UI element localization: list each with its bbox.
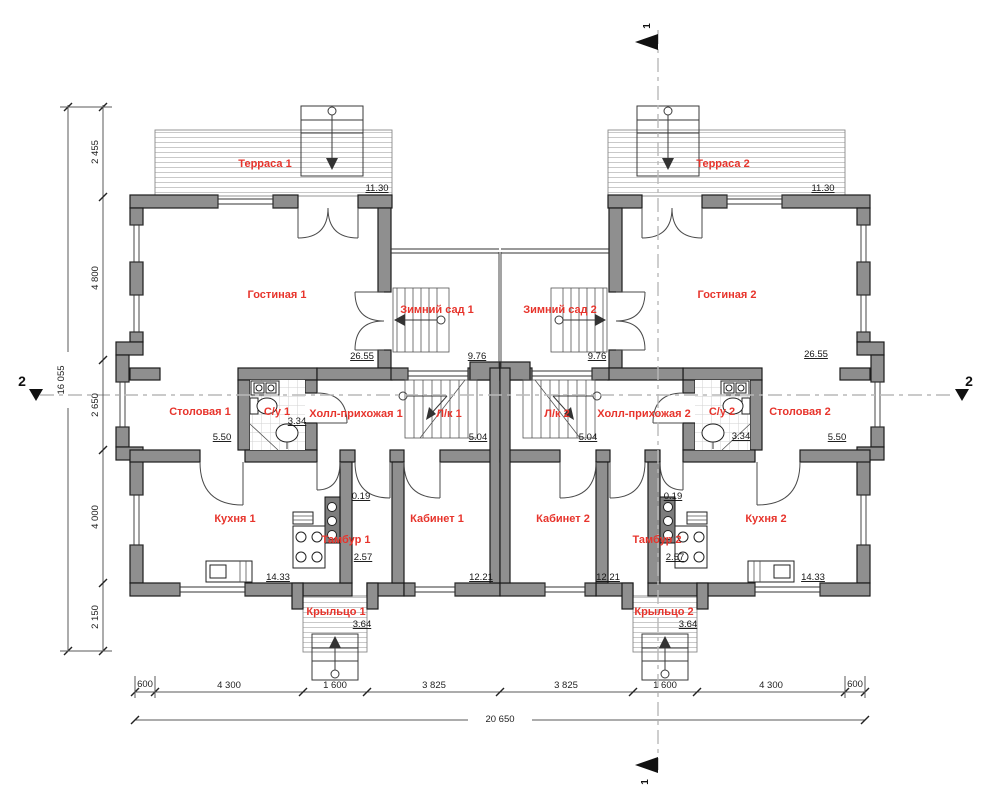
area-dining-1: 5.50	[213, 432, 232, 443]
floor-plan-drawing: Терраса 1 Терраса 2 Гостиная 1 Гостиная …	[0, 0, 1000, 801]
area-winter-garden-1: 9.76	[468, 351, 487, 362]
area-study-2: 12.21	[596, 572, 620, 583]
room-label-living-1: Гостиная 1	[248, 289, 307, 301]
dim-h-3: 3 825	[422, 680, 446, 691]
small-dim-1: 0.19	[352, 491, 371, 502]
room-label-living-2: Гостиная 2	[698, 289, 757, 301]
dim-horizontal-total: 20 650	[485, 714, 514, 725]
section-arrow-right	[955, 389, 969, 401]
area-winter-garden-2: 9.76	[588, 351, 607, 362]
area-terrace-2: 11.30	[811, 183, 834, 194]
area-dining-2: 5.50	[828, 432, 847, 443]
unit-1	[116, 106, 500, 680]
dim-v-3: 4 000	[90, 505, 101, 529]
floor-plan-page: Терраса 1 Терраса 2 Гостиная 1 Гостиная …	[0, 0, 1000, 801]
dim-h-1: 4 300	[217, 680, 241, 691]
dim-h-0: 600	[137, 679, 153, 690]
dim-v-4: 2 150	[90, 605, 101, 629]
section-label-1-top: 1	[642, 23, 653, 29]
dim-h-6: 4 300	[759, 680, 783, 691]
room-label-dining-2: Столовая 2	[769, 406, 831, 418]
dim-h-5: 1 600	[653, 680, 677, 691]
room-label-winter-garden-2: Зимний сад 2	[523, 304, 597, 316]
small-dim-2: 0.19	[664, 491, 683, 502]
area-porch-2: 3.64	[679, 619, 698, 630]
dim-v-2: 2 650	[90, 393, 101, 417]
area-porch-1: 3.64	[353, 619, 372, 630]
room-label-porch-2: Крыльцо 2	[634, 606, 693, 618]
room-label-study-1: Кабинет 1	[410, 513, 464, 525]
section-label-2-right: 2	[965, 373, 973, 389]
room-label-winter-garden-1: Зимний сад 1	[400, 304, 474, 316]
area-living-1: 26.55	[350, 351, 374, 362]
area-terrace-1: 11.30	[365, 183, 388, 194]
area-tambour-1: 2.57	[354, 552, 373, 563]
dim-h-2: 1 600	[323, 680, 347, 691]
area-kitchen-1: 14.33	[266, 572, 290, 583]
room-label-kitchen-1: Кухня 1	[214, 513, 255, 525]
area-living-2: 26.55	[804, 349, 828, 360]
section-arrow-bottom	[635, 757, 658, 773]
area-wc-1: 3.34	[288, 416, 307, 427]
room-label-kitchen-2: Кухня 2	[745, 513, 786, 525]
dim-vertical-total: 16 055	[56, 365, 67, 394]
room-label-study-2: Кабинет 2	[536, 513, 590, 525]
area-tambour-2: 2.57	[666, 552, 685, 563]
room-label-dining-1: Столовая 1	[169, 406, 231, 418]
area-stair-2: 5.04	[579, 432, 598, 443]
room-label-terrace-1: Терраса 1	[238, 158, 291, 170]
dim-v-1: 4 800	[90, 266, 101, 290]
dim-h-4: 3 825	[554, 680, 578, 691]
dim-v-0: 2 455	[90, 140, 101, 164]
section-label-2-left: 2	[18, 373, 26, 389]
room-label-tambour-2: Тамбур 2	[632, 534, 681, 546]
room-label-wc-1: С/у 1	[264, 406, 290, 418]
area-kitchen-2: 14.33	[801, 572, 825, 583]
room-label-hall-1: Холл-прихожая 1	[309, 408, 402, 420]
room-label-tambour-1: Тамбур 1	[321, 534, 370, 546]
room-label-porch-1: Крыльцо 1	[306, 606, 365, 618]
room-label-wc-2: С/у 2	[709, 406, 735, 418]
dim-h-7: 600	[847, 679, 863, 690]
room-label-stair-2: Л/к 2	[544, 408, 569, 420]
room-label-hall-2: Холл-прихожая 2	[597, 408, 690, 420]
area-study-1: 12.21	[469, 572, 493, 583]
area-stair-1: 5.04	[469, 432, 488, 443]
section-label-1-bottom: 1	[640, 779, 651, 785]
room-label-terrace-2: Терраса 2	[696, 158, 749, 170]
area-wc-2: 3.34	[732, 431, 751, 442]
section-arrow-top	[635, 34, 658, 50]
room-label-stair-1: Л/к 1	[436, 408, 461, 420]
